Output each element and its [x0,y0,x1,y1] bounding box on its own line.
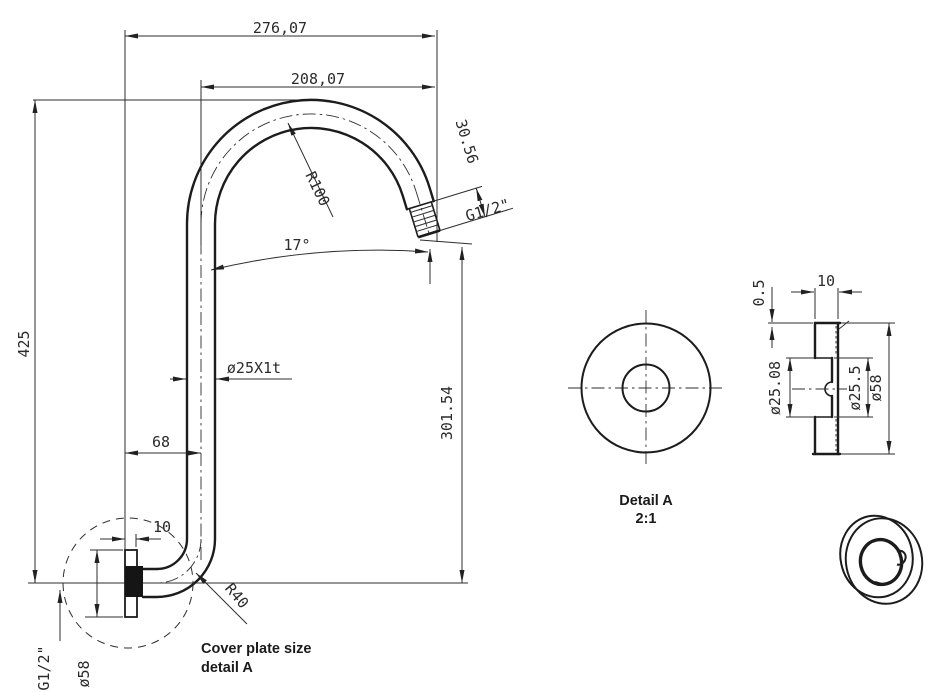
dim-main-radius: R100 [301,169,333,209]
dim-overall-width: 276,07 [253,19,307,37]
centerlines [157,114,430,583]
plate-profile [813,321,849,454]
detail-a-view: Detail A 2:1 [568,310,724,527]
dim-lip: 0.5 [750,279,768,306]
dim-outlet-angle: 17° [283,236,310,254]
dim-overall-height: 425 [15,330,33,357]
outlet-thread-label: G1/2" [463,195,511,225]
cover-plate-note-line2: detail A [201,660,253,676]
angle-dimension-arc [211,250,428,270]
dim-wall-offset: 68 [152,433,170,451]
dim-bend-radius: R40 [221,580,252,612]
dim-depth: 10 [817,272,835,290]
dim-outer-diameter: ø58 [867,374,885,401]
dim-bore-back: ø25.08 [766,361,784,415]
dim-plate-diameter: ø58 [75,660,93,687]
dim-outlet-height: 301.54 [438,386,456,440]
inlet-thread-block [125,566,143,597]
pipe-spec-label: ø25X1t [227,359,281,377]
iso-bore [856,536,905,589]
detail-title: Detail A [619,493,673,509]
dim-plate-thickness: 10 [153,518,171,536]
extension-lines [28,30,513,617]
pipe-outline [143,100,434,597]
cover-plate-note-line1: Cover plate size [201,641,311,657]
outlet-fitting [407,201,440,237]
main-view: 276,07 208,07 425 30.56 G1/2" R100 17° ø… [15,19,513,691]
drawing-sheet: 276,07 208,07 425 30.56 G1/2" R100 17° ø… [0,0,943,692]
dim-outlet-length: 30.56 [452,117,482,165]
detail-scale: 2:1 [636,511,657,527]
dim-bore-front: ø25.5 [846,365,864,410]
technical-drawing: 276,07 208,07 425 30.56 G1/2" R100 17° ø… [0,0,943,692]
section-view: 0.5 10 ø25.08 ø25.5 ø58 [750,272,895,454]
iso-view [833,509,930,611]
inlet-thread-label: G1/2" [35,645,53,690]
dim-arc-width: 208,07 [291,70,345,88]
